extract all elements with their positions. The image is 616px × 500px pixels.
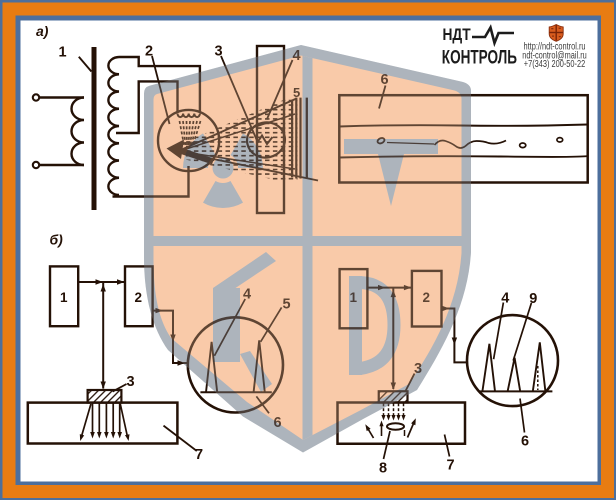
svg-text:8: 8 [379, 461, 387, 477]
svg-text:7: 7 [447, 458, 455, 474]
svg-text:7: 7 [195, 447, 203, 463]
svg-text:1: 1 [60, 290, 68, 305]
svg-text:а): а) [36, 23, 49, 39]
svg-text:+7(343) 200-50-22: +7(343) 200-50-22 [524, 58, 585, 69]
svg-text:КОНТРОЛЬ: КОНТРОЛЬ [442, 46, 517, 68]
svg-text:1: 1 [59, 45, 67, 61]
svg-text:2: 2 [135, 290, 143, 305]
svg-text:б): б) [50, 232, 64, 248]
svg-text:3: 3 [127, 374, 135, 390]
svg-text:НДТ: НДТ [443, 26, 472, 45]
svg-text:6: 6 [521, 434, 529, 450]
